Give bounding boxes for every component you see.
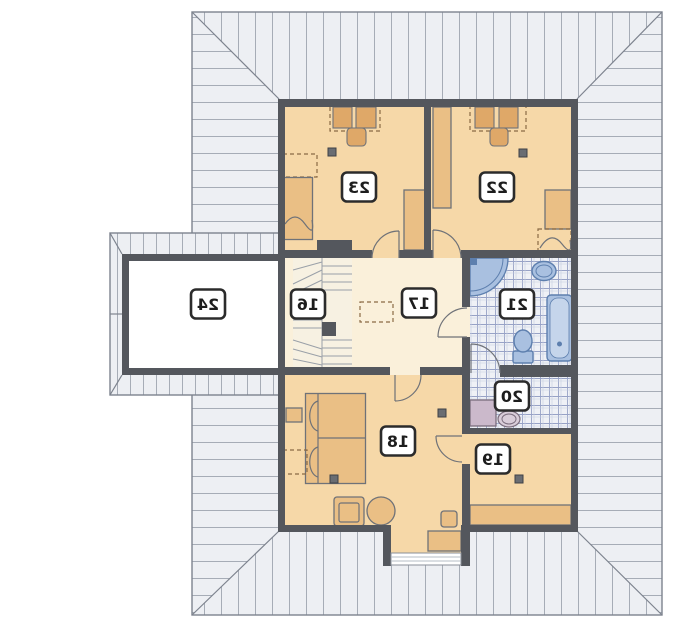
chair xyxy=(347,128,366,146)
room-number-19: 19 xyxy=(482,450,504,469)
bathroom-top-wall xyxy=(461,250,578,258)
room-label-23: 23 xyxy=(342,173,376,202)
wardrobe xyxy=(433,107,451,208)
exterior-wall-bottom-b xyxy=(461,525,578,532)
floor-plan-page: 16 17 18 19 20 21 22 23 24 xyxy=(0,0,700,629)
floor-marker xyxy=(515,475,523,483)
bath-door-opening xyxy=(462,307,470,337)
room-label-17: 17 xyxy=(402,289,436,318)
bay-wall-right xyxy=(461,525,470,566)
wall-20-19 xyxy=(462,428,578,434)
round-table xyxy=(367,497,395,525)
door-19-opening xyxy=(462,434,470,464)
hall-top-wall-b xyxy=(399,250,433,258)
room-label-18: 18 xyxy=(381,427,415,456)
room-number-24: 24 xyxy=(197,295,219,314)
chair xyxy=(490,128,508,146)
room-label-24: 24 xyxy=(191,290,225,319)
wall-hall-bath-b xyxy=(462,337,470,428)
floor-marker xyxy=(519,149,527,157)
wall-18-19 xyxy=(462,464,470,527)
wall-23-22 xyxy=(424,107,431,250)
nightstand xyxy=(286,408,302,422)
room-number-23: 23 xyxy=(348,178,370,197)
shower-drain xyxy=(470,258,477,265)
room-number-17: 17 xyxy=(408,294,430,313)
wall-hall-bath-a xyxy=(462,252,470,307)
washing-machine xyxy=(470,400,496,426)
balcony-door xyxy=(391,553,461,565)
low-storage xyxy=(470,505,571,525)
room-number-22: 22 xyxy=(486,178,508,197)
desk xyxy=(356,107,376,128)
room-label-21: 21 xyxy=(500,290,534,319)
exterior-wall-left xyxy=(278,99,285,532)
door-23-opening xyxy=(372,250,399,258)
floor-marker xyxy=(328,148,336,156)
exterior-wall-right xyxy=(571,99,578,532)
roof-right-slope xyxy=(577,12,662,615)
exterior-wall-bottom-a xyxy=(278,525,391,532)
wardrobe xyxy=(404,190,426,250)
small-sink xyxy=(498,411,520,427)
stool xyxy=(441,511,457,527)
floor-marker xyxy=(330,475,338,483)
balcony-door-sill xyxy=(391,553,461,565)
exterior-wall-top xyxy=(278,99,578,107)
door-18-opening xyxy=(390,367,420,375)
toilet-bowl xyxy=(514,330,532,352)
wall-21-20 xyxy=(500,365,578,377)
bay-desk xyxy=(428,531,461,551)
bath-to-20-passage xyxy=(470,365,500,377)
room-label-16: 16 xyxy=(291,290,325,319)
bed xyxy=(545,190,571,229)
room-label-22: 22 xyxy=(480,173,514,202)
desk xyxy=(475,107,494,128)
floor-plan-drawing: 16 17 18 19 20 21 22 23 24 xyxy=(0,0,700,629)
desk xyxy=(333,107,352,128)
bed xyxy=(284,178,313,240)
floor-marker xyxy=(438,409,446,417)
door-22-opening xyxy=(433,250,461,258)
toilet-tank xyxy=(513,351,533,363)
room-number-18: 18 xyxy=(387,432,409,451)
stair-stub-wall xyxy=(317,240,352,258)
room-label-19: 19 xyxy=(476,445,510,474)
room-number-20: 20 xyxy=(501,387,523,406)
hall-bottom-wall-a xyxy=(278,367,390,375)
room-label-20: 20 xyxy=(495,382,529,411)
bay-wall-left xyxy=(383,525,391,566)
bathtub-inner xyxy=(550,298,569,358)
room-number-21: 21 xyxy=(506,295,528,314)
room-number-16: 16 xyxy=(297,295,319,314)
stair-newel-post xyxy=(322,322,336,336)
bathtub-drain xyxy=(557,342,562,347)
desk xyxy=(499,107,518,128)
